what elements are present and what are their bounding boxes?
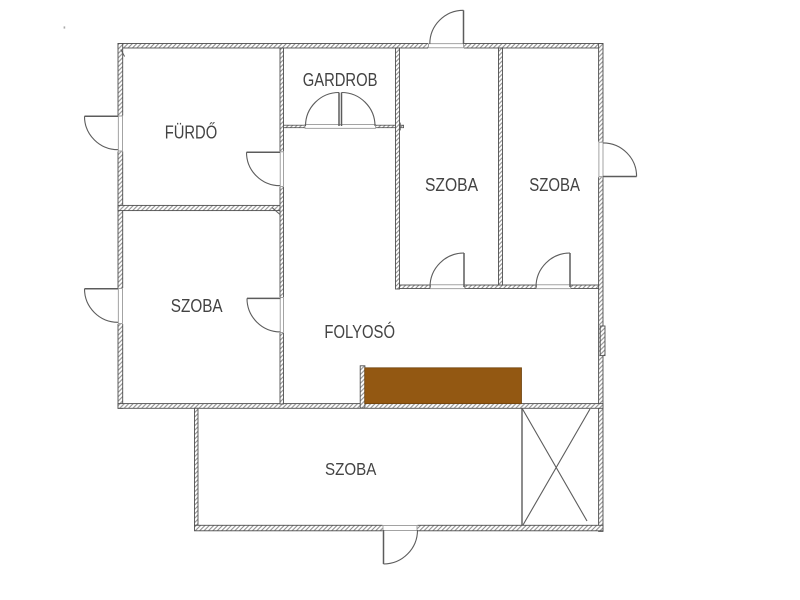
svg-text:FÜRDŐ: FÜRDŐ bbox=[165, 121, 218, 142]
svg-text:SZOBA: SZOBA bbox=[171, 296, 223, 316]
svg-text:SZOBA: SZOBA bbox=[425, 175, 478, 195]
svg-text:SZOBA: SZOBA bbox=[529, 175, 580, 195]
svg-text:SZOBA: SZOBA bbox=[325, 459, 377, 479]
svg-text:FOLYOSÓ: FOLYOSÓ bbox=[324, 321, 395, 342]
svg-text:GARDROB: GARDROB bbox=[303, 69, 378, 90]
